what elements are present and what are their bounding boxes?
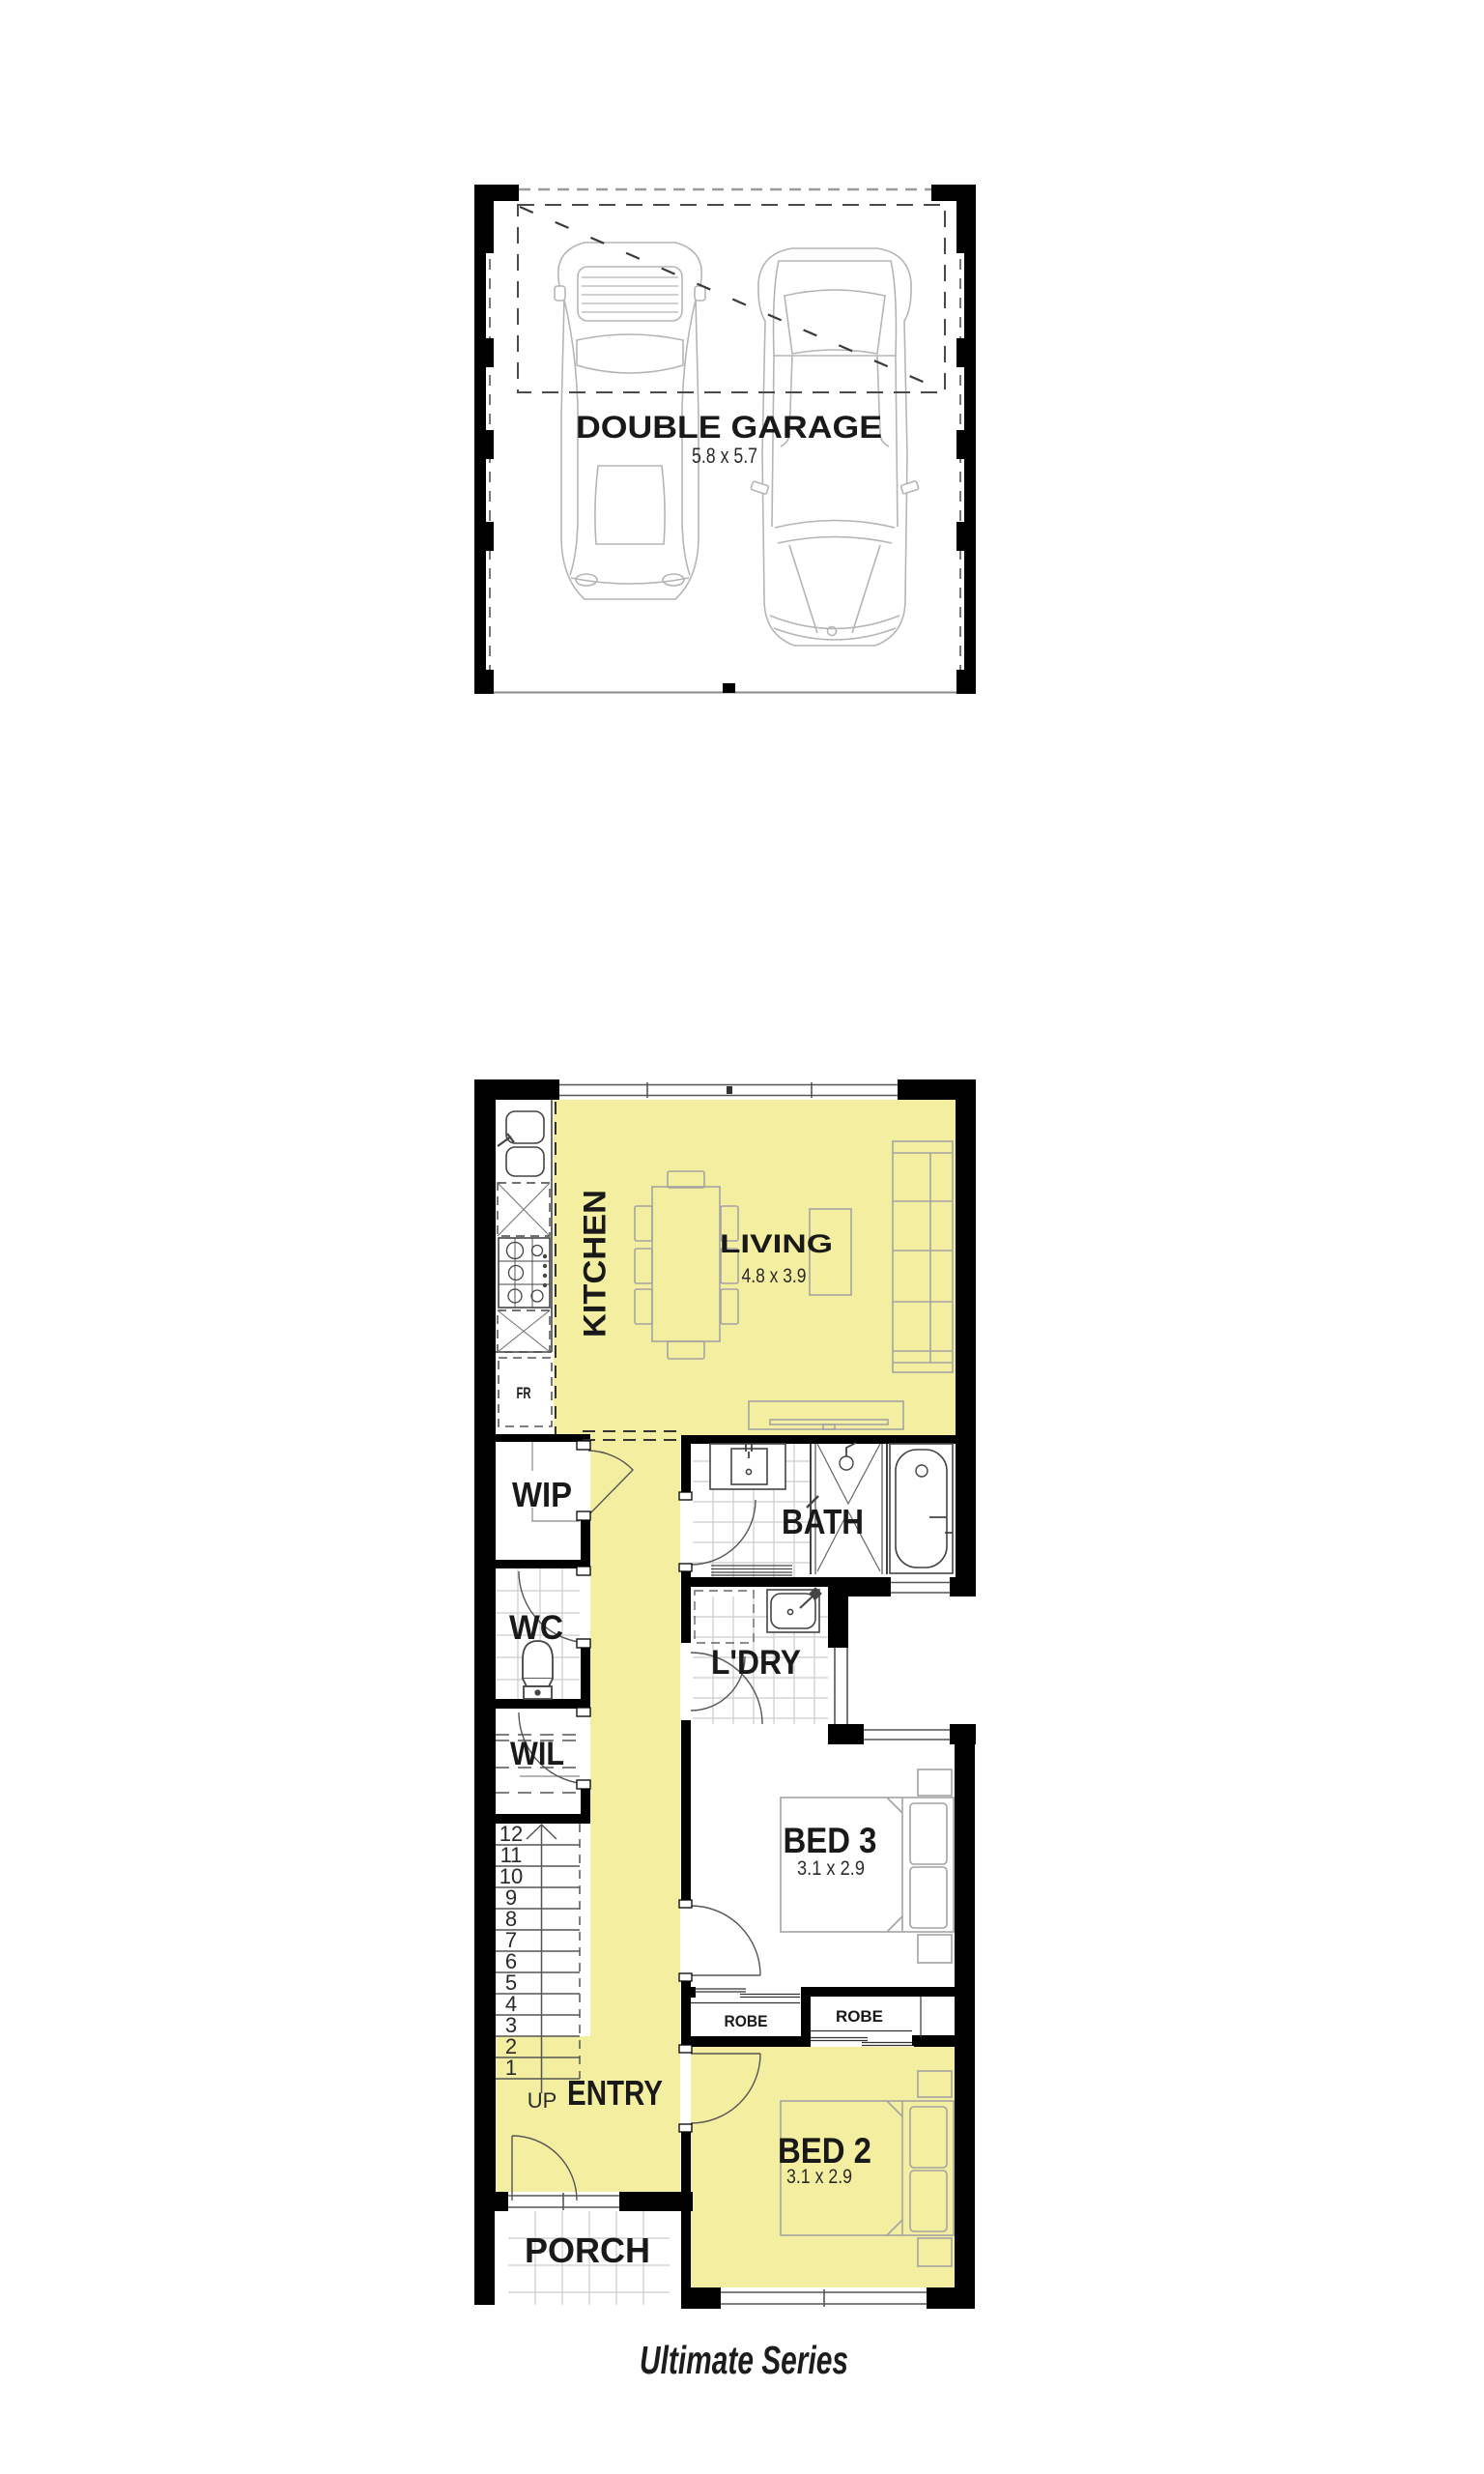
svg-text:4.8 x 3.9: 4.8 x 3.9 [742, 1265, 807, 1287]
svg-text:WIP: WIP [512, 1475, 572, 1514]
svg-text:WC: WC [509, 1609, 563, 1647]
svg-text:KITCHEN: KITCHEN [578, 1190, 613, 1338]
svg-text:3.1 x 2.9: 3.1 x 2.9 [797, 1857, 865, 1880]
svg-text:FR: FR [517, 1384, 531, 1402]
svg-text:L'DRY: L'DRY [711, 1644, 801, 1682]
svg-text:BED 3: BED 3 [784, 1821, 877, 1860]
svg-text:ENTRY: ENTRY [567, 2073, 663, 2113]
svg-text:5.8 x 5.7: 5.8 x 5.7 [692, 444, 757, 468]
svg-text:Ultimate Series: Ultimate Series [640, 2338, 848, 2382]
svg-text:1: 1 [505, 2056, 517, 2080]
svg-text:UP: UP [528, 2088, 557, 2113]
svg-text:ROBE: ROBE [836, 2007, 883, 2026]
svg-text:WIL: WIL [510, 1736, 564, 1772]
svg-text:BED 2: BED 2 [778, 2131, 871, 2171]
svg-text:LIVING: LIVING [720, 1229, 833, 1258]
svg-text:3.1 x 2.9: 3.1 x 2.9 [786, 2166, 852, 2188]
svg-text:DOUBLE GARAGE: DOUBLE GARAGE [576, 410, 882, 445]
svg-text:BATH: BATH [782, 1502, 864, 1541]
svg-text:ROBE: ROBE [725, 2012, 768, 2030]
svg-text:PORCH: PORCH [525, 2230, 650, 2270]
